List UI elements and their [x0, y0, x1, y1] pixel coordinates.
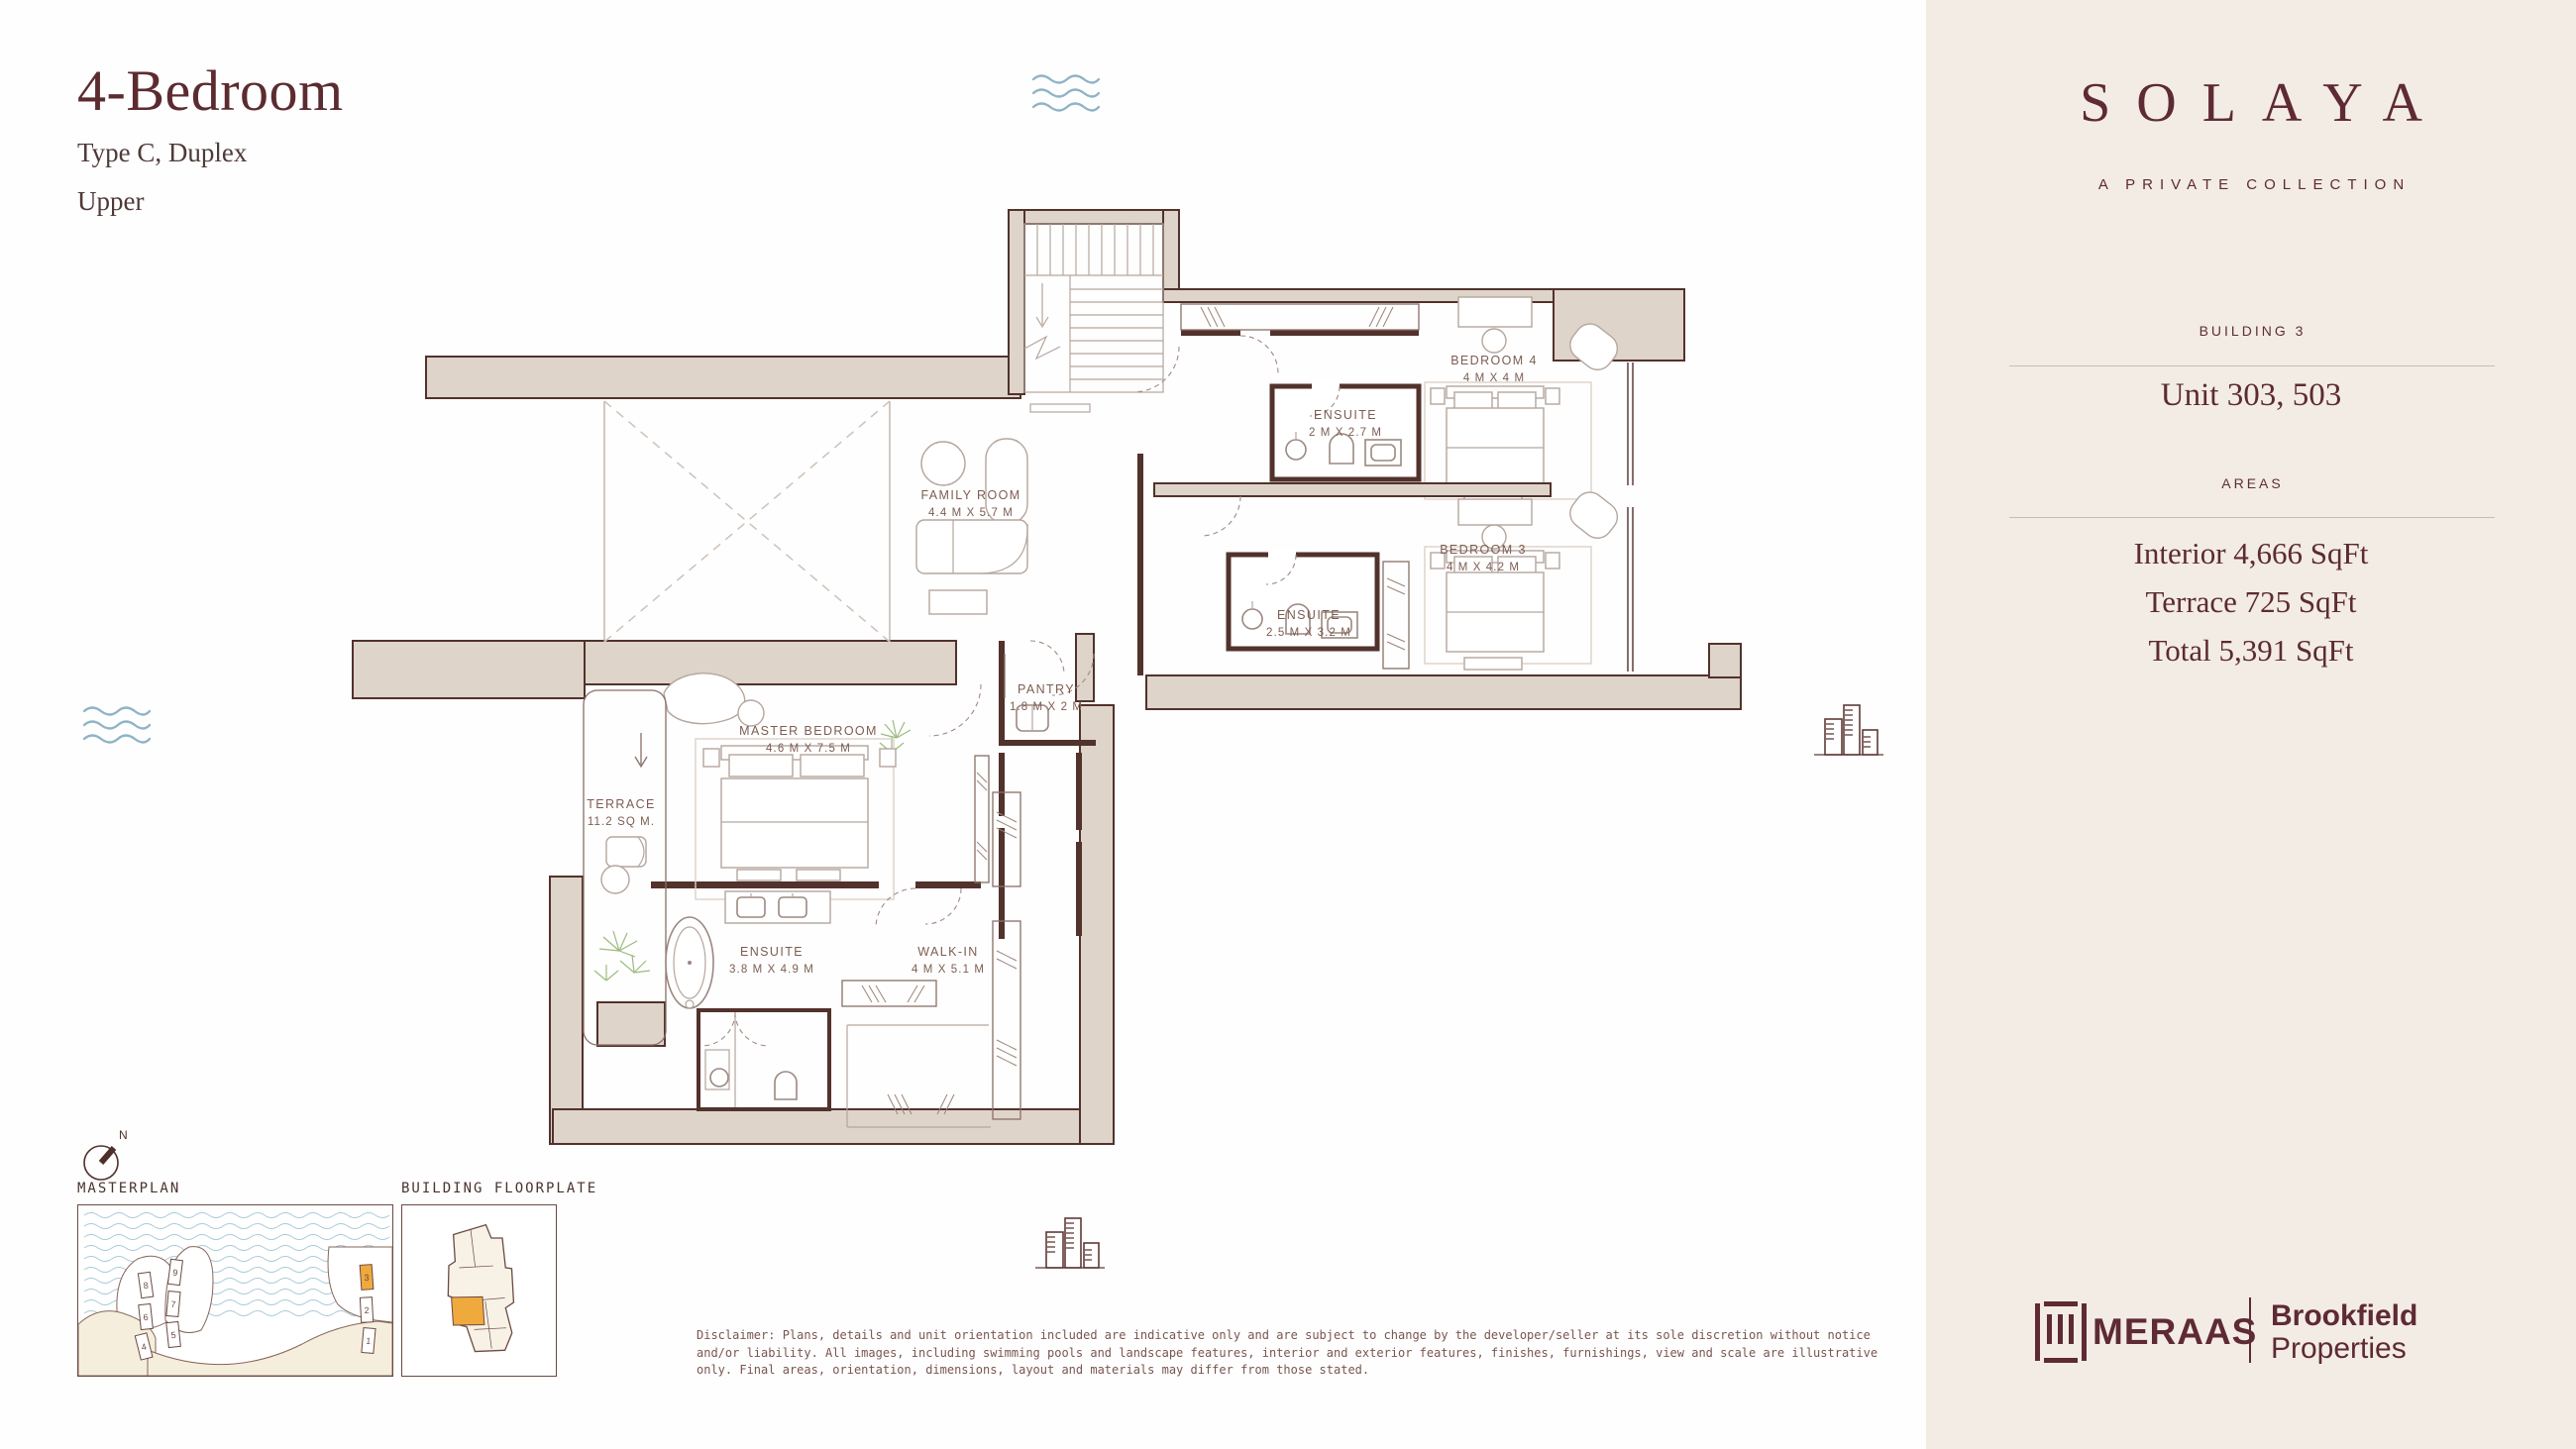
disclaimer-text: Disclaimer: Plans, details and unit orie…: [697, 1327, 1900, 1380]
divider: [2009, 365, 2495, 366]
building-label: BUILDING 3: [1926, 323, 2576, 339]
room-dims-master-ensuite: 3.8 M X 4.9 M: [729, 964, 814, 976]
city-skyline-icon: [1811, 697, 1886, 768]
brookfield-line1: Brookfield: [2271, 1299, 2417, 1332]
floorplate-label: BUILDING FLOORPLATE: [401, 1181, 597, 1196]
room-label-terrace: TERRACE: [587, 797, 656, 811]
corridor-wardrobe: [1181, 304, 1419, 330]
room-label-ensuite3: ENSUITE: [1277, 608, 1341, 622]
room-label-family: FAMILY ROOM: [920, 488, 1020, 502]
room-dims-family: 4.4 M X 5.7 M: [928, 507, 1014, 519]
compass-north-label: N: [119, 1128, 128, 1142]
unit-number: Unit 303, 503: [1926, 377, 2576, 414]
floorplate-thumbnail: [401, 1204, 557, 1377]
room-dims-ensuite4: 2 M X 2.7 M: [1309, 427, 1382, 439]
master-ensuite-fixtures: [666, 891, 830, 1109]
level-subtitle: Upper: [77, 186, 344, 217]
room-dims-pantry: 1.8 M X 2 M: [1010, 701, 1083, 713]
room-dims-ensuite3: 2.5 M X 3.2 M: [1266, 627, 1351, 639]
wc-room: [698, 1010, 829, 1109]
area-total: Total 5,391 SqFt: [1926, 626, 2576, 674]
room-label-pantry: PANTRY: [1018, 682, 1075, 696]
brookfield-line2: Properties: [2271, 1332, 2417, 1365]
hall-closet: [975, 756, 989, 882]
logo-divider: [2249, 1297, 2251, 1363]
building-footprint: [437, 1222, 525, 1359]
double-height-void: [604, 401, 890, 642]
floorplan-page: 4-Bedroom Type C, Duplex Upper: [0, 0, 2576, 1449]
area-interior: Interior 4,666 SqFt: [1926, 529, 2576, 577]
area-terrace: Terrace 725 SqFt: [1926, 577, 2576, 626]
title-block: 4-Bedroom Type C, Duplex Upper: [77, 57, 344, 217]
building-6: 6: [143, 1312, 149, 1322]
room-dims-walkin: 4 M X 5.1 M: [912, 964, 985, 976]
page-title: 4-Bedroom: [77, 57, 344, 124]
room-label-master-ensuite: ENSUITE: [740, 945, 804, 959]
brand-tagline: A PRIVATE COLLECTION: [1926, 176, 2576, 193]
building-3-highlighted: 3: [364, 1273, 370, 1283]
sidebar: SOLAYA A PRIVATE COLLECTION BUILDING 3 U…: [1926, 0, 2576, 1449]
room-dims-terrace: 11.2 SQ M.: [588, 816, 655, 828]
water-waves-icon: [81, 703, 153, 754]
building-5: 5: [170, 1330, 176, 1340]
room-label-ensuite4: ENSUITE: [1314, 408, 1377, 422]
room-dims-bedroom3: 4 M X 4.2 M: [1447, 562, 1520, 573]
structural-walls: [353, 210, 1741, 1144]
room-label-master: MASTER BEDROOM: [739, 724, 878, 738]
building-7: 7: [170, 1299, 176, 1309]
room-label-bedroom3: BEDROOM 3: [1440, 543, 1527, 557]
room-dims-master: 4.6 M X 7.5 M: [766, 743, 851, 755]
developer-logos: MERAAS Brookfield Properties: [1926, 1288, 2576, 1406]
divider: [2009, 517, 2495, 518]
staircase: [1024, 224, 1163, 392]
areas-heading: AREAS: [1926, 475, 2576, 491]
bedroom3-furniture: [1154, 483, 1623, 670]
meraas-logo-icon: [2035, 1301, 2087, 1368]
building-2: 2: [364, 1305, 370, 1315]
walkin-closets: [842, 792, 1020, 1127]
highlighted-unit: [449, 1292, 487, 1329]
land-shapes: [78, 1247, 392, 1376]
masterplan-thumbnail: 8 6 4 9 7 5 3 2 1: [77, 1204, 393, 1377]
building-1: 1: [366, 1336, 372, 1346]
terrace-area: [584, 690, 666, 1045]
unit-type-subtitle: Type C, Duplex: [77, 138, 344, 168]
brookfield-logo: Brookfield Properties: [2271, 1299, 2417, 1365]
room-label-bedroom4: BEDROOM 4: [1450, 354, 1538, 367]
brand-logo: SOLAYA: [1926, 71, 2576, 135]
room-dims-bedroom4: 4 M X 4 M: [1463, 372, 1525, 384]
floor-plan: FAMILY ROOM 4.4 M X 5.7 M BEDROOM 4 4 M …: [337, 198, 1793, 1154]
meraas-logo-text: MERAAS: [2093, 1311, 2257, 1353]
city-skyline-icon: [1032, 1210, 1108, 1281]
master-bedroom-furniture: [664, 673, 981, 928]
area-stats: Interior 4,666 SqFt Terrace 725 SqFt Tot…: [1926, 529, 2576, 674]
plant: [880, 720, 911, 753]
water-waves-icon: [1030, 71, 1102, 122]
masterplan-label: MASTERPLAN: [77, 1181, 180, 1196]
room-label-walkin: WALK-IN: [917, 945, 978, 959]
